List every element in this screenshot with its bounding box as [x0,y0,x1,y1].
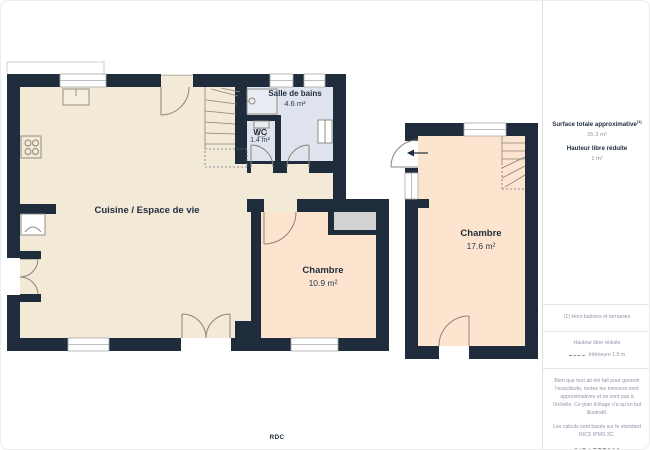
disclaimer-text: Bien que tout ait été fait pour garantir… [550,377,644,417]
window-annex-left [405,173,418,199]
legend-title: Hauteur libre réduite [543,340,650,346]
surface-total-value: 35.3 m² [543,132,650,138]
fireplace-icon [21,214,45,235]
wc-top-wall [247,115,281,121]
main-building [7,74,389,351]
footnote-text: (1) Hors balcons et terrasses [543,314,650,320]
annex-wall-stub [418,199,429,208]
kitchen-sink [63,89,89,105]
disclaimer-section: Bien que tout ait été fait pour garantir… [543,368,650,450]
window-bedroom1-bottom [291,338,338,351]
window-annex-top [464,123,506,136]
window-bathroom-1 [270,74,293,87]
legend-item-text: Inférieure 1.5 m [589,352,625,358]
closet-bottom-wall [328,230,376,235]
double-door-opening [181,338,231,351]
bedroom1-door-opening [264,199,297,212]
closet [334,212,376,230]
dashed-line-icon [569,355,585,356]
footnote-section: (1) Hors balcons et terrasses [543,304,650,331]
standard-note-text: Les calculs sont basés sur le standard R… [550,423,644,439]
surface-summary: Surface totale approximative(1) 35.3 m² … [543,119,650,169]
reduced-height-title: Hauteur libre réduite [543,145,650,152]
reduced-height-value: 1 m² [543,156,650,162]
window-bathroom-2 [304,74,325,87]
french-door-stub-top [20,251,41,259]
bedroom2-floor [418,136,525,346]
wc-divider-wall [275,121,281,161]
shower-icon [247,89,277,114]
window-kitchen-top [60,74,106,87]
info-sidebar: Surface totale approximative(1) 35.3 m² … [542,1,650,450]
fireplace-stub [20,204,56,214]
annex-building [391,123,538,359]
terrace-outline [7,62,104,74]
bedroom1-left-wall [251,212,261,338]
legend-section: Hauteur libre réduite Inférieure 1.5 m [543,331,650,368]
footnote-marker: (1) [637,119,642,124]
radiator-icon [318,120,332,143]
cooktop-icon [21,136,41,158]
french-door-stub-bottom [20,294,41,302]
french-door-opening [7,258,20,295]
legend-row: Inférieure 1.5 m [543,352,650,358]
window-kitchen-bottom [68,338,109,351]
floorplan-viewer: Cuisine / Espace de vie Salle de bains 4… [0,0,650,450]
surface-total-label: Surface totale approximative [552,121,637,128]
surface-total-title: Surface totale approximative(1) [543,119,650,128]
annex-bottom-opening [439,346,469,359]
